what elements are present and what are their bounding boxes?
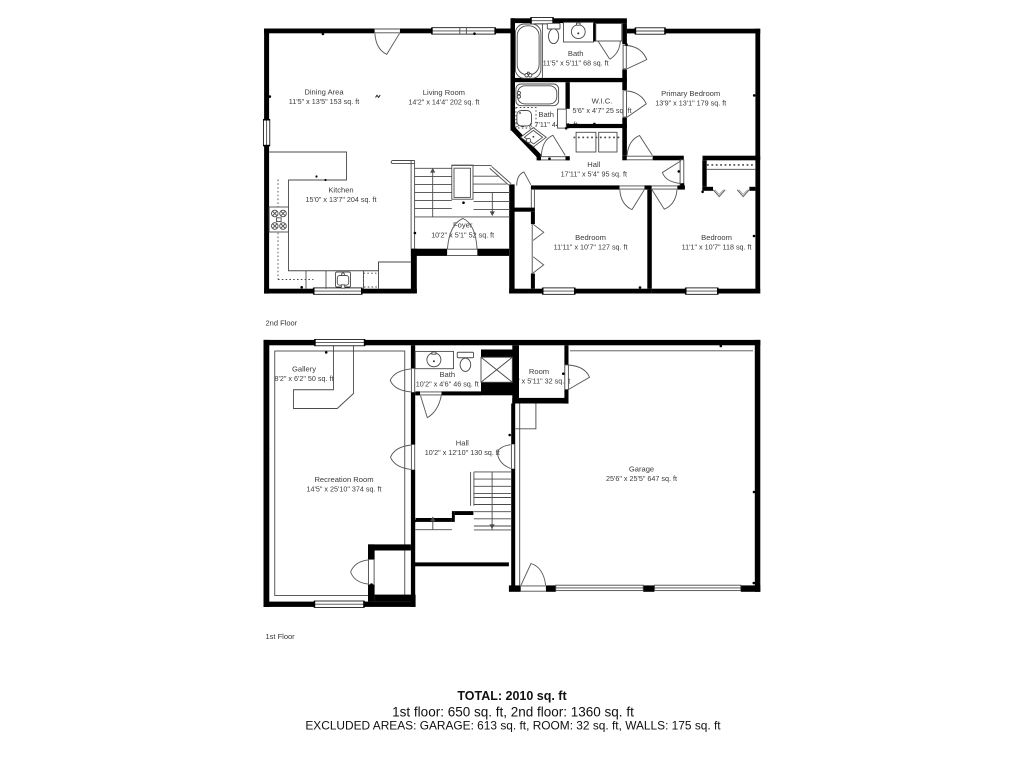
svg-text:Living Room: Living Room: [423, 88, 465, 97]
svg-text:10'2" x 12'10" 130 sq. ft: 10'2" x 12'10" 130 sq. ft: [425, 448, 500, 457]
svg-text:Gallery: Gallery: [292, 365, 316, 374]
svg-text:17'11" x 5'4" 95 sq. ft: 17'11" x 5'4" 95 sq. ft: [561, 170, 627, 179]
svg-text:Recreation Room: Recreation Room: [314, 475, 373, 484]
svg-text:Foyer: Foyer: [453, 221, 473, 230]
svg-text:Bath: Bath: [538, 110, 554, 119]
svg-text:15'0" x 13'7" 204 sq. ft: 15'0" x 13'7" 204 sq. ft: [306, 195, 377, 204]
svg-text:TOTAL: 2010 sq. ft: TOTAL: 2010 sq. ft: [457, 689, 567, 703]
svg-text:Dining Area: Dining Area: [304, 88, 344, 97]
svg-text:14'2" x 14'4" 202 sq. ft: 14'2" x 14'4" 202 sq. ft: [408, 98, 479, 107]
svg-text:14'5" x 25'10" 374 sq. ft: 14'5" x 25'10" 374 sq. ft: [307, 484, 382, 493]
svg-text:Hall: Hall: [587, 160, 600, 169]
svg-text:EXCLUDED AREAS: GARAGE: 613 sq: EXCLUDED AREAS: GARAGE: 613 sq. ft, ROOM…: [305, 718, 721, 732]
svg-text:13'9" x 13'1" 179 sq. ft: 13'9" x 13'1" 179 sq. ft: [655, 98, 726, 107]
svg-text:Room: Room: [529, 367, 549, 376]
svg-text:8'2" x 6'2" 50 sq. ft: 8'2" x 6'2" 50 sq. ft: [275, 374, 334, 383]
svg-text:W.I.C.: W.I.C.: [592, 97, 613, 106]
svg-text:Kitchen: Kitchen: [328, 186, 353, 195]
svg-text:Bath: Bath: [568, 49, 584, 58]
svg-text:Hall: Hall: [456, 438, 469, 447]
svg-text:Bedroom: Bedroom: [575, 233, 606, 242]
svg-text:10'2" x 5'1" 52 sq. ft: 10'2" x 5'1" 52 sq. ft: [431, 230, 494, 239]
svg-text:10'2" x 4'6" 46 sq. ft: 10'2" x 4'6" 46 sq. ft: [416, 380, 479, 389]
svg-text:1st floor: 650 sq. ft, 2nd flo: 1st floor: 650 sq. ft, 2nd floor: 1360 s…: [392, 705, 634, 720]
svg-text:11'5" x 13'5" 153 sq. ft: 11'5" x 13'5" 153 sq. ft: [289, 97, 359, 106]
svg-text:11'1" x 10'7" 118 sq. ft: 11'1" x 10'7" 118 sq. ft: [682, 243, 752, 252]
svg-text:25'6" x 25'5" 647 sq. ft: 25'6" x 25'5" 647 sq. ft: [606, 474, 677, 483]
svg-text:Garage: Garage: [629, 465, 654, 474]
svg-text:11'11" x 10'7" 127 sq. ft: 11'11" x 10'7" 127 sq. ft: [554, 243, 628, 252]
svg-text:Primary Bedroom: Primary Bedroom: [661, 89, 720, 98]
svg-text:Bath: Bath: [439, 370, 455, 379]
svg-text:11'5" x 5'11" 68 sq. ft: 11'5" x 5'11" 68 sq. ft: [543, 59, 609, 68]
svg-text:2nd Floor: 2nd Floor: [266, 319, 298, 328]
svg-text:Bedroom: Bedroom: [701, 233, 732, 242]
svg-text:1st Floor: 1st Floor: [266, 632, 296, 641]
